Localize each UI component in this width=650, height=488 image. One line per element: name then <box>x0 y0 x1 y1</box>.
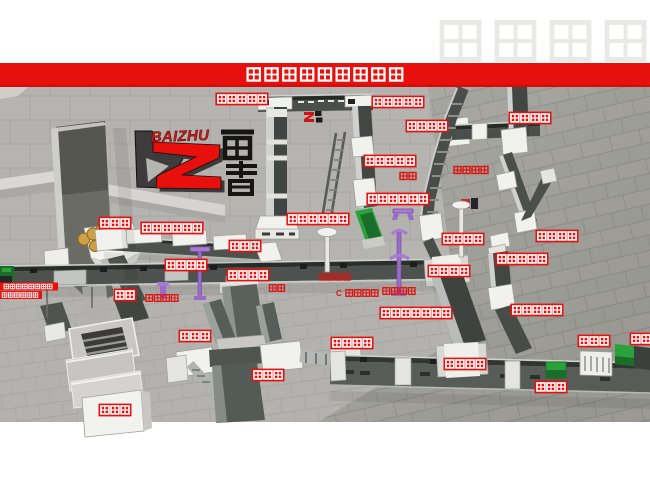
svg-text:BAIZHU: BAIZHU <box>151 127 211 146</box>
svg-text:C: C <box>336 289 342 298</box>
